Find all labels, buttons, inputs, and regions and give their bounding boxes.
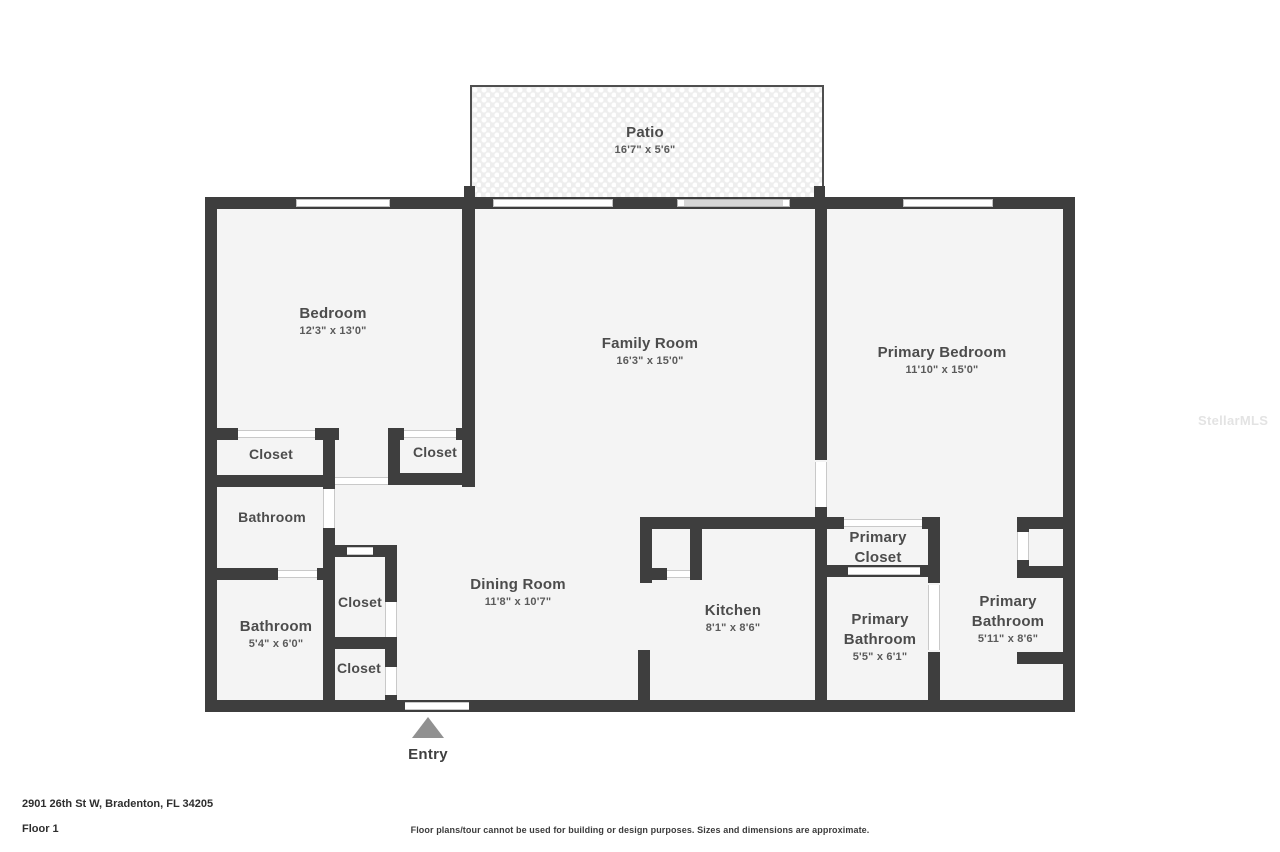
wall-segment <box>205 428 238 440</box>
wall-segment <box>815 507 827 712</box>
floor-plan: Patio 16'7" x 5'6" Bedroom 12'3" x 13'0"… <box>0 0 1280 852</box>
wall-segment <box>205 568 278 580</box>
room-label-bathroom-guest: Bathroom 5'4" x 6'0" <box>240 617 312 652</box>
room-label-kitchen: Kitchen 8'1" x 8'6" <box>705 601 761 636</box>
wall-segment <box>330 637 397 649</box>
door-opening <box>404 430 456 438</box>
door-opening <box>1017 532 1029 560</box>
wall-segment <box>640 517 827 529</box>
wall-segment <box>462 197 475 487</box>
wall-segment <box>456 428 475 440</box>
door-opening <box>385 667 397 695</box>
wall-segment <box>638 650 650 712</box>
room-label-primary-bedroom: Primary Bedroom 11'10" x 15'0" <box>878 343 1007 378</box>
room-label-closet: Closet <box>338 593 382 611</box>
wall-segment <box>205 475 333 487</box>
room-label-family-room: Family Room 16'3" x 15'0" <box>602 334 698 369</box>
wall-segment <box>815 197 827 460</box>
room-label-patio: Patio 16'7" x 5'6" <box>615 123 676 158</box>
wall-segment <box>640 568 667 580</box>
room-label-bathroom: Bathroom <box>238 508 306 526</box>
room-label-closet: Closet <box>249 445 293 463</box>
sliding-door <box>677 199 790 207</box>
door-opening <box>238 430 315 438</box>
wall-segment <box>1063 197 1075 712</box>
door-opening <box>848 567 920 575</box>
door-opening <box>667 570 690 578</box>
room-label-closet: Closet <box>337 659 381 677</box>
window <box>903 199 993 207</box>
window <box>296 199 390 207</box>
door-opening <box>278 570 317 578</box>
wall-segment <box>1017 652 1075 664</box>
window <box>493 199 613 207</box>
unit-floor-area <box>205 197 1075 712</box>
door-opening <box>844 519 922 527</box>
wall-segment <box>315 428 339 440</box>
watermark-text: StellarMLS <box>1198 413 1268 428</box>
door-opening <box>347 547 373 555</box>
door-opening <box>335 477 388 485</box>
wall-segment <box>922 517 940 529</box>
entry-label: Entry <box>408 746 448 763</box>
wall-segment <box>1017 566 1075 578</box>
address-text: 2901 26th St W, Bradenton, FL 34205 <box>22 798 213 810</box>
wall-segment <box>388 473 475 485</box>
wall-segment <box>388 428 404 440</box>
room-label-dining-room: Dining Room 11'8" x 10'7" <box>470 575 566 610</box>
door-opening <box>405 702 469 710</box>
disclaimer-text: Floor plans/tour cannot be used for buil… <box>0 825 1280 835</box>
wall-segment <box>317 568 335 580</box>
door-opening <box>385 602 397 637</box>
room-label-primary-bathroom: Primary Bathroom 5'5" x 6'1" <box>828 610 932 665</box>
room-label-closet: Closet <box>413 443 457 461</box>
room-label-primary-bathroom: Primary Bathroom 5'11" x 8'6" <box>953 592 1063 647</box>
door-opening <box>815 462 827 507</box>
entry-arrow-icon <box>412 717 444 738</box>
room-label-primary-closet: Primary Closet <box>833 528 923 568</box>
door-opening <box>323 489 335 528</box>
wall-segment <box>205 197 217 712</box>
room-label-bedroom: Bedroom 12'3" x 13'0" <box>299 304 366 339</box>
wall-segment <box>1017 517 1075 529</box>
